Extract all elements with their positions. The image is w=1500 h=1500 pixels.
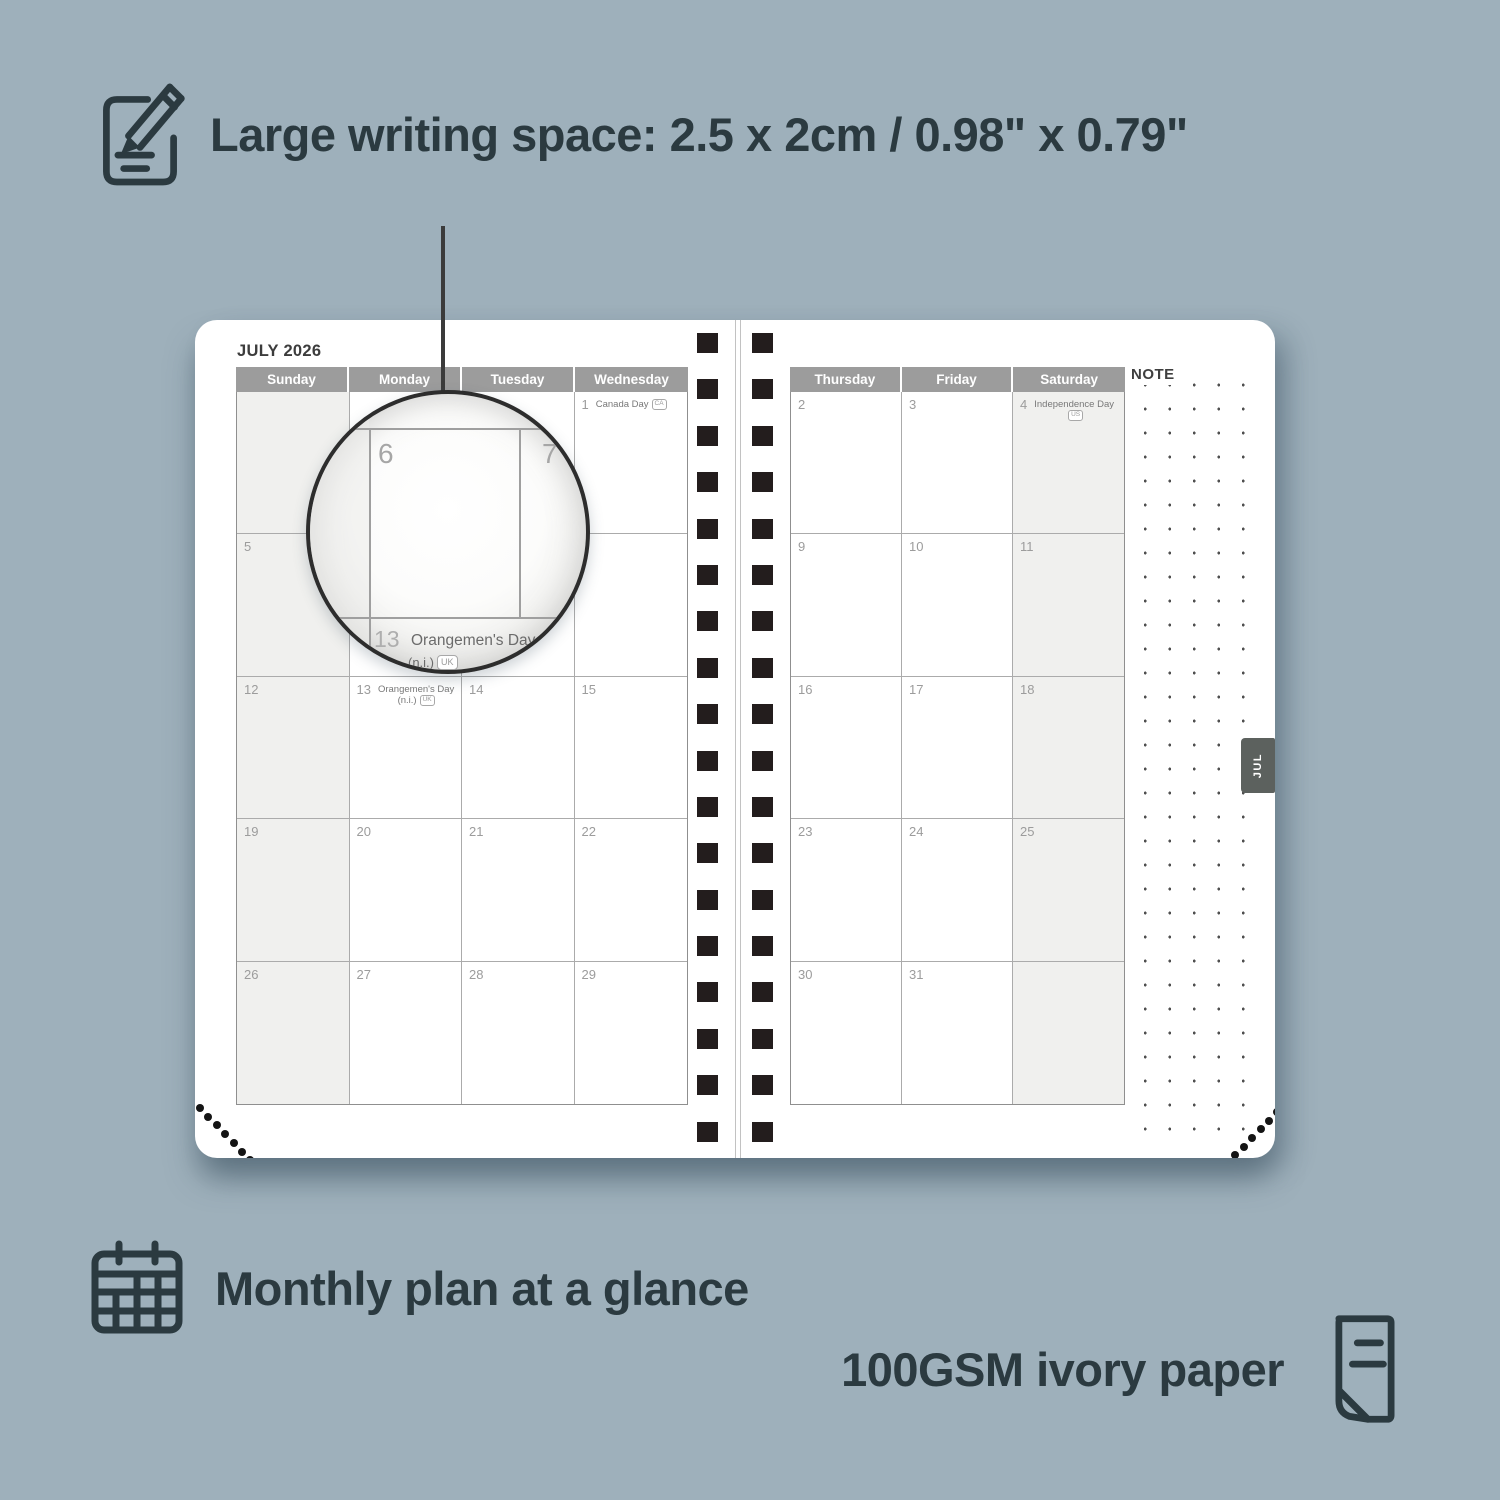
lens-holiday-name: Orangemen's Day: [411, 632, 535, 650]
spiral-hole: [752, 1122, 773, 1142]
perforation-dot: [1257, 1125, 1265, 1133]
spiral-hole: [697, 565, 718, 585]
day-number: 25: [1020, 824, 1034, 839]
magnifier-pointer-line: [441, 226, 445, 398]
calendar-cell: 25: [1013, 819, 1124, 961]
feature-writing-space: Large writing space: 2.5 x 2cm / 0.98" x…: [92, 80, 1188, 188]
day-number: 11: [1020, 539, 1034, 554]
country-badge: CA: [652, 399, 667, 410]
calendar-cell: 28: [462, 962, 575, 1104]
magnifier-lens: 6 7 13 Orangemen's Day (n.i.) UK: [306, 390, 590, 674]
day-header: Tuesday: [462, 367, 575, 392]
planner-product-infographic: Large writing space: 2.5 x 2cm / 0.98" x…: [0, 0, 1500, 1500]
day-header: Saturday: [1013, 367, 1125, 392]
calendar-cell: 24: [902, 819, 1013, 961]
calendar-cell: 30: [791, 962, 902, 1104]
lens-holiday-line2: (n.i.) UK: [408, 655, 458, 670]
feature-monthly-plan-label: Monthly plan at a glance: [215, 1261, 749, 1316]
spiral-hole: [697, 797, 718, 817]
day-number: 29: [582, 967, 596, 982]
day-number: 15: [582, 682, 596, 697]
spiral-hole: [752, 379, 773, 399]
perforation-dot: [1231, 1151, 1239, 1158]
lens-day-7: 7: [542, 438, 558, 470]
spiral-hole: [697, 1029, 718, 1049]
perforation-dot: [196, 1104, 204, 1112]
day-number: 18: [1020, 682, 1034, 697]
day-number: 10: [909, 539, 923, 554]
spiral-hole: [697, 472, 718, 492]
day-number: 16: [798, 682, 812, 697]
calendar-cell: 11: [1013, 534, 1124, 676]
day-number: 21: [469, 824, 483, 839]
calendar-cell: 12: [237, 677, 350, 819]
spiral-hole: [697, 426, 718, 446]
spiral-hole: [697, 333, 718, 353]
day-number: 14: [469, 682, 483, 697]
day-number: 24: [909, 824, 923, 839]
day-number: 12: [244, 682, 258, 697]
holiday-entry: Orangemen's Day(n.i.)UK: [378, 684, 454, 706]
spiral-hole: [697, 982, 718, 1002]
spiral-hole: [752, 658, 773, 678]
lens-day-6: 6: [378, 438, 394, 470]
spiral-hole: [697, 843, 718, 863]
spiral-hole: [752, 472, 773, 492]
day-header: Thursday: [790, 367, 902, 392]
day-number: 22: [582, 824, 596, 839]
perforation-dot: [246, 1156, 254, 1158]
calendar-cell: 16: [791, 677, 902, 819]
calendar-cell: 13Orangemen's Day(n.i.)UK: [350, 677, 463, 819]
paper-sheet-icon: [1324, 1310, 1406, 1428]
perforation-dot: [1248, 1134, 1256, 1142]
spiral-hole: [697, 658, 718, 678]
lens-gridline: [310, 428, 586, 430]
page-gap-line: [735, 320, 736, 1158]
notepad-pencil-icon: [92, 80, 188, 188]
spiral-hole: [752, 936, 773, 956]
lens-gridline: [519, 428, 521, 619]
calendar-cell: 29: [575, 962, 688, 1104]
spiral-binding-left: [697, 333, 718, 1158]
calendar-cell: 8: [575, 534, 688, 676]
feature-monthly-plan: Monthly plan at a glance: [85, 1236, 749, 1340]
lens-shaded-column: [310, 394, 369, 670]
calendar-cell: 31: [902, 962, 1013, 1104]
spiral-hole: [752, 333, 773, 353]
spiral-hole: [697, 1075, 718, 1095]
perforation-dot: [1265, 1117, 1273, 1125]
calendar-cell: [1013, 962, 1124, 1104]
country-badge: US: [1068, 410, 1083, 421]
feature-paper-label: 100GSM ivory paper: [841, 1342, 1284, 1397]
day-number: 28: [469, 967, 483, 982]
calendar-cell: 14: [462, 677, 575, 819]
day-number: 4: [1020, 397, 1027, 412]
perforation-dot: [221, 1130, 229, 1138]
spiral-hole: [697, 1122, 718, 1142]
calendar-cell: 9: [791, 534, 902, 676]
calendar-cell: 20: [350, 819, 463, 961]
day-number: 13: [357, 682, 371, 697]
day-number: 9: [798, 539, 805, 554]
spiral-hole: [752, 611, 773, 631]
calendar-cell: 27: [350, 962, 463, 1104]
day-number: 3: [909, 397, 916, 412]
country-badge: UK: [420, 695, 435, 706]
day-number: 31: [909, 967, 923, 982]
day-number: 23: [798, 824, 812, 839]
calendar-cell: 18: [1013, 677, 1124, 819]
lens-country-badge: UK: [437, 655, 458, 670]
spiral-hole: [752, 843, 773, 863]
day-header: Monday: [349, 367, 462, 392]
note-label: NOTE: [1131, 366, 1182, 385]
spiral-hole: [752, 797, 773, 817]
spiral-hole: [752, 1075, 773, 1095]
calendar-cell: 4Independence DayUS: [1013, 392, 1124, 534]
calendar-cell: 23: [791, 819, 902, 961]
spiral-hole: [752, 519, 773, 539]
month-tab: JUL: [1241, 738, 1275, 793]
spiral-hole: [752, 565, 773, 585]
calendar-cell: 22: [575, 819, 688, 961]
spiral-binding-right: [752, 333, 773, 1158]
day-number: 17: [909, 682, 923, 697]
spiral-hole: [697, 704, 718, 724]
day-number: 30: [798, 967, 812, 982]
spiral-hole: [697, 379, 718, 399]
calendar-cell: 1Canada DayCA: [575, 392, 688, 534]
calendar-grid-icon: [85, 1236, 189, 1340]
perforation-dot: [1273, 1108, 1275, 1116]
perforation-dot: [238, 1148, 246, 1156]
day-header: Sunday: [236, 367, 349, 392]
month-tab-label: JUL: [1252, 753, 1264, 778]
calendar-cell: 17: [902, 677, 1013, 819]
perforation-dot: [230, 1139, 238, 1147]
day-header: Wednesday: [575, 367, 688, 392]
lens-gridline: [310, 617, 586, 619]
spiral-hole: [752, 751, 773, 771]
spiral-hole: [752, 890, 773, 910]
spiral-hole: [697, 751, 718, 771]
note-dot-grid: NOTE: [1128, 366, 1256, 1132]
spiral-hole: [697, 936, 718, 956]
calendar-cell: 15: [575, 677, 688, 819]
day-number: 19: [244, 824, 258, 839]
spiral-hole: [752, 704, 773, 724]
perforation-dot: [204, 1113, 212, 1121]
lens-day-13: 13: [374, 626, 400, 653]
calendar-cell: 10: [902, 534, 1013, 676]
spiral-hole: [697, 611, 718, 631]
spiral-hole: [697, 890, 718, 910]
feature-paper: 100GSM ivory paper: [841, 1310, 1406, 1428]
calendar-cell: 21: [462, 819, 575, 961]
holiday-entry: Canada DayCA: [596, 399, 667, 410]
page-gap-line: [740, 320, 741, 1158]
day-number: 20: [357, 824, 371, 839]
calendar-right-page: ThursdayFridaySaturday234Independence Da…: [790, 367, 1125, 1105]
calendar-cell: 26: [237, 962, 350, 1104]
perforation-dot: [213, 1121, 221, 1129]
day-number: 27: [357, 967, 371, 982]
spiral-hole: [697, 519, 718, 539]
day-number: 26: [244, 967, 258, 982]
calendar-cell: 2: [791, 392, 902, 534]
day-header: Friday: [902, 367, 1014, 392]
lens-gridline: [369, 428, 371, 670]
month-title: JULY 2026: [237, 342, 321, 361]
spiral-hole: [752, 982, 773, 1002]
perforation-dot: [1240, 1143, 1248, 1151]
day-number: 2: [798, 397, 805, 412]
calendar-cell: 3: [902, 392, 1013, 534]
day-number: 1: [582, 397, 589, 412]
calendar-cell: 19: [237, 819, 350, 961]
feature-writing-space-label: Large writing space: 2.5 x 2cm / 0.98" x…: [210, 107, 1188, 162]
spiral-hole: [752, 426, 773, 446]
day-number: 5: [244, 539, 251, 554]
spiral-hole: [752, 1029, 773, 1049]
holiday-entry: Independence DayUS: [1034, 399, 1114, 421]
